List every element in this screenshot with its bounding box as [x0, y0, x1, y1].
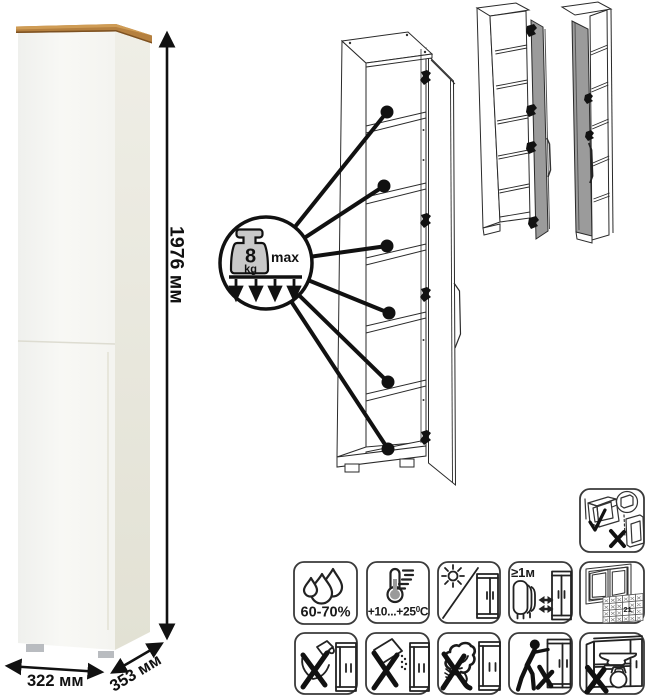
svg-text:322 мм: 322 мм: [27, 672, 84, 690]
svg-text:21: 21: [624, 605, 632, 614]
svg-text:+10...+250C: +10...+250C: [368, 605, 429, 619]
svg-text:60-70%: 60-70%: [301, 605, 351, 621]
svg-text:max: max: [271, 249, 299, 265]
svg-text:kg: kg: [244, 264, 257, 276]
svg-text:≥1м: ≥1м: [511, 565, 535, 580]
svg-text:1976 мм: 1976 мм: [166, 226, 188, 304]
